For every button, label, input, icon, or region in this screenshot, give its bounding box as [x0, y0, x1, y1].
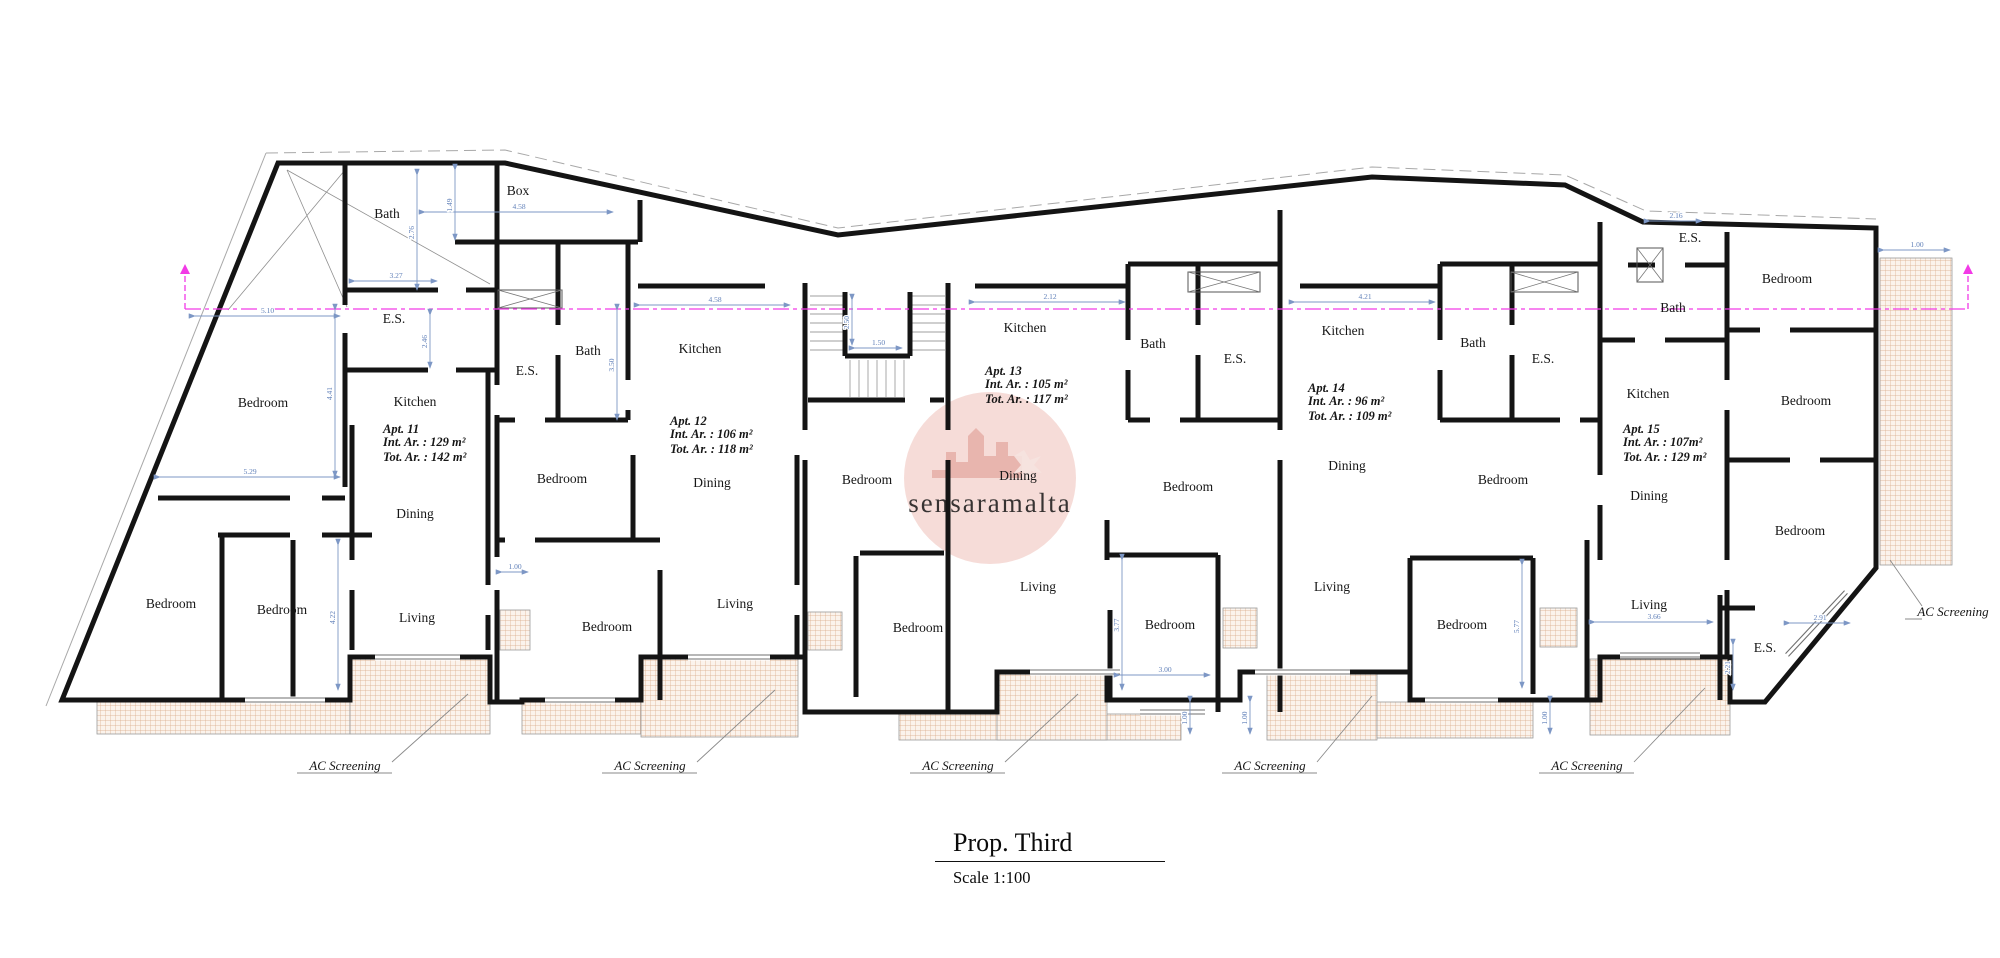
room-label: Dining [999, 468, 1037, 483]
room-label: Dining [1328, 458, 1366, 473]
apartment-name: Apt. 14 [1307, 381, 1345, 395]
apartment-int-area: Int. Ar. : 107m² [1622, 435, 1703, 449]
ac-screening-label: AC Screening [613, 758, 686, 773]
room-label: E.S. [1224, 351, 1247, 366]
terrace-hatch [350, 659, 490, 734]
ac-screening-label: AC Screening [1550, 758, 1623, 773]
ac-screening-label: AC Screening [1916, 604, 1989, 619]
apartment-name: Apt. 12 [669, 414, 707, 428]
terrace-hatch [522, 702, 641, 734]
room-label: E.S. [383, 311, 406, 326]
room-label: Bath [575, 343, 601, 358]
terrace-hatch [641, 659, 798, 737]
room-label: Kitchen [394, 394, 437, 409]
section-arrow [1963, 264, 1973, 274]
room-label: Bedroom [1775, 523, 1826, 538]
section-arrow [180, 264, 190, 274]
dimension-text: 5.10 [261, 306, 274, 315]
dimension-text: 2.21 [1723, 661, 1732, 674]
ac-screening-label: AC Screening [308, 758, 381, 773]
room-label: Kitchen [679, 341, 722, 356]
apartment-name: Apt. 15 [1622, 422, 1660, 436]
dimension-text: 3.66 [1647, 612, 1660, 621]
room-label: Bedroom [238, 395, 289, 410]
room-label: Box [507, 183, 530, 198]
room-label: Living [399, 610, 435, 625]
room-label: Bath [1660, 300, 1686, 315]
page-title: Prop. Third [953, 828, 1185, 858]
dimension-text: 3.77 [1112, 618, 1121, 631]
terrace-hatch [1590, 659, 1730, 735]
room-label: Bath [374, 206, 400, 221]
apartment-tot-area: Tot. Ar. : 117 m² [985, 392, 1068, 406]
terrace-hatch [1267, 674, 1377, 740]
terrace-hatch [1223, 608, 1257, 648]
dimension-text: 1.00 [508, 562, 521, 571]
terrace-hatch [97, 702, 350, 734]
dimension-text: 4.58 [708, 295, 721, 304]
dimension-text: 1.00 [1240, 711, 1249, 724]
apartment-int-area: Int. Ar. : 129 m² [382, 435, 466, 449]
watermark-text: sensaramalta [908, 488, 1071, 518]
room-label: Bath [1460, 335, 1486, 350]
apartment-int-area: Int. Ar. : 106 m² [669, 427, 753, 441]
terrace-hatch [500, 610, 530, 650]
room-label: Living [1631, 597, 1667, 612]
dimension-text: 4.58 [512, 202, 525, 211]
dimension-text: 1.00 [1540, 711, 1549, 724]
dimension-text: 2.50 [842, 316, 851, 329]
room-label: E.S. [1754, 640, 1777, 655]
title-underline [935, 861, 1165, 862]
dimension-text: 2.76 [407, 226, 416, 239]
room-label: E.S. [516, 363, 539, 378]
dimension-text: 3.00 [1158, 665, 1171, 674]
dimension-text: 2.46 [420, 335, 429, 348]
cross-brace-line [287, 170, 490, 284]
room-label: Kitchen [1322, 323, 1365, 338]
apartment-name: Apt. 11 [382, 422, 419, 436]
ac-leader-line [1890, 560, 1922, 606]
room-label: Kitchen [1004, 320, 1047, 335]
room-label: Bedroom [1781, 393, 1832, 408]
room-label: Living [1020, 579, 1056, 594]
dimension-text: 2.91 [1813, 613, 1826, 622]
dimension-text: 2.12 [1043, 292, 1056, 301]
apartment-tot-area: Tot. Ar. : 142 m² [383, 450, 467, 464]
ac-screening-label: AC Screening [921, 758, 994, 773]
room-label: Dining [396, 506, 434, 521]
room-label: Bedroom [1762, 271, 1813, 286]
terrace-hatch [997, 674, 1107, 740]
dimension-text: 5.77 [1512, 620, 1521, 633]
ac-screening-label: AC Screening [1233, 758, 1306, 773]
apartment-name: Apt. 13 [984, 364, 1022, 378]
dimension-text: 2.16 [1669, 211, 1682, 220]
apartment-int-area: Int. Ar. : 105 m² [984, 377, 1068, 391]
dimension-text: 4.41 [325, 387, 334, 400]
room-label: Bedroom [582, 619, 633, 634]
floor-plan-drawing: sensaramalta3.274.584.582.124.212.165.29… [0, 0, 2000, 958]
dimension-text: 1.50 [872, 338, 885, 347]
window-line [1788, 593, 1847, 656]
dimension-text: 4.22 [328, 611, 337, 624]
apartment-int-area: Int. Ar. : 96 m² [1307, 394, 1384, 408]
terrace-hatch [808, 612, 842, 650]
apartment-tot-area: Tot. Ar. : 118 m² [670, 442, 753, 456]
room-label: Bath [1140, 336, 1166, 351]
room-label: Kitchen [1627, 386, 1670, 401]
dimension-text: 4.21 [1358, 292, 1371, 301]
terrace-hatch [1540, 608, 1577, 647]
apartment-tot-area: Tot. Ar. : 129 m² [1623, 450, 1707, 464]
dimension-text: 1.00 [1180, 711, 1189, 724]
room-label: Dining [693, 475, 731, 490]
terrace-hatch [1377, 702, 1533, 738]
dimension-text: 1.00 [1910, 240, 1923, 249]
site-boundary-line [46, 153, 266, 706]
room-label: Bedroom [537, 471, 588, 486]
window-break [1787, 592, 1846, 655]
dimension-text: 3.27 [389, 271, 402, 280]
room-label: E.S. [1679, 230, 1702, 245]
room-label: Bedroom [1145, 617, 1196, 632]
dimension-text: 1.49 [445, 198, 454, 211]
room-label: Living [717, 596, 753, 611]
scale-note: Scale 1:100 [953, 868, 1185, 888]
room-label: E.S. [1532, 351, 1555, 366]
cross-brace-line [287, 170, 347, 307]
dimension-text: 5.29 [243, 467, 256, 476]
room-label: Bedroom [257, 602, 308, 617]
room-label: Dining [1630, 488, 1668, 503]
room-label: Bedroom [146, 596, 197, 611]
room-label: Bedroom [1478, 472, 1529, 487]
room-label: Bedroom [893, 620, 944, 635]
terrace-hatch [1880, 258, 1952, 565]
room-label: Bedroom [1163, 479, 1214, 494]
room-label: Living [1314, 579, 1350, 594]
title-block: Prop. Third Scale 1:100 [935, 828, 1185, 888]
apartment-tot-area: Tot. Ar. : 109 m² [1308, 409, 1392, 423]
dimension-text: 3.50 [607, 358, 616, 371]
floor-plan-canvas: sensaramalta3.274.584.582.124.212.165.29… [0, 0, 2000, 958]
room-label: Bedroom [842, 472, 893, 487]
room-label: Bedroom [1437, 617, 1488, 632]
